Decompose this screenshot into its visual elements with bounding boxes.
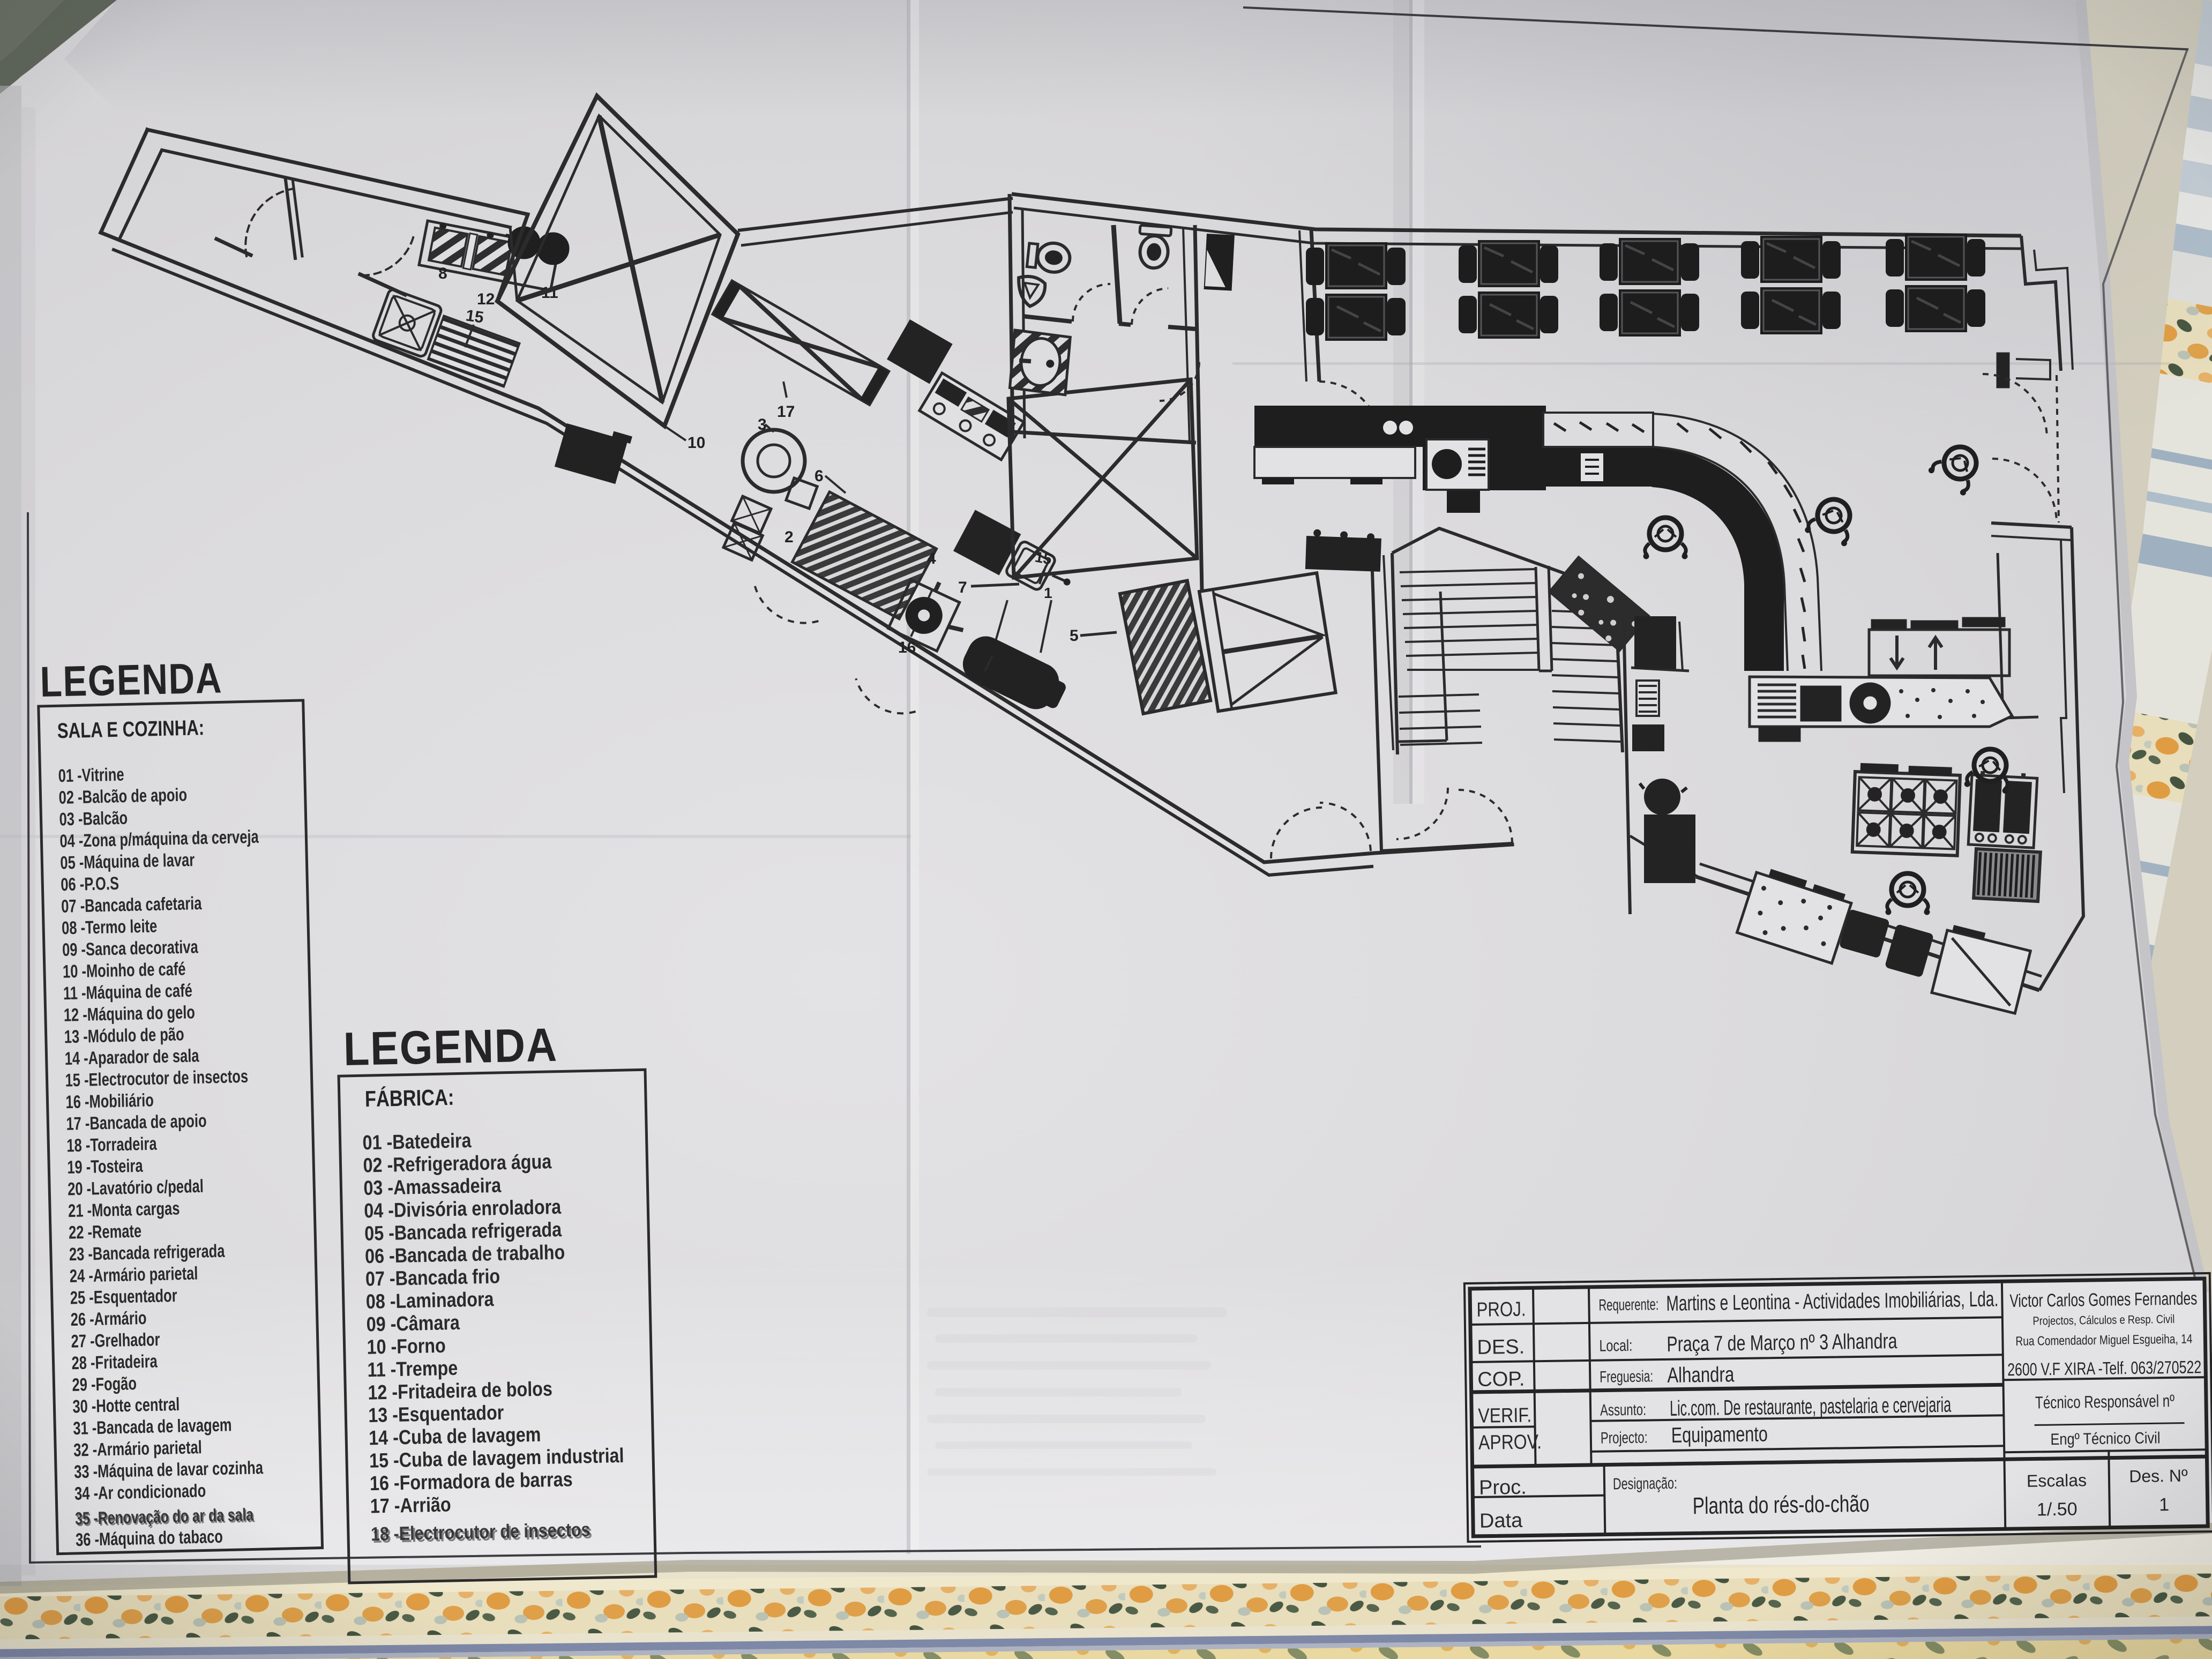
svg-text:LEGENDA: LEGENDA (343, 1018, 558, 1075)
svg-text:Lic.com. De restaurante, paste: Lic.com. De restaurante, pastelaria e ce… (1670, 1393, 1952, 1421)
svg-text:Planta do rés-do-chão: Planta do rés-do-chão (1692, 1491, 1870, 1520)
svg-text:Equipamento: Equipamento (1671, 1422, 1768, 1447)
svg-text:LEGENDA: LEGENDA (40, 654, 223, 706)
svg-text:VERIF.: VERIF. (1478, 1404, 1532, 1427)
svg-text:3: 3 (758, 416, 767, 434)
svg-text:Freguesia:: Freguesia: (1600, 1367, 1653, 1386)
svg-text:Proc.: Proc. (1479, 1476, 1527, 1499)
svg-text:Requerente:: Requerente: (1598, 1296, 1658, 1314)
svg-text:1: 1 (980, 672, 989, 690)
svg-text:Martins e Leontina - Actividad: Martins e Leontina - Actividades Imobili… (1666, 1287, 1999, 1316)
svg-text:Des. Nº: Des. Nº (2129, 1466, 2188, 1486)
svg-text:COP.: COP. (1477, 1368, 1525, 1391)
svg-text:Engº Técnico Civil: Engº Técnico Civil (2050, 1429, 2160, 1448)
svg-text:FÁBRICA:: FÁBRICA: (364, 1084, 454, 1112)
svg-text:Escalas: Escalas (2027, 1470, 2087, 1491)
svg-text:35 -Renovação do ar da sala: 35 -Renovação do ar da sala (76, 1507, 255, 1530)
svg-text:17: 17 (777, 403, 795, 421)
svg-text:1/.50: 1/.50 (2037, 1499, 2078, 1520)
svg-text:Data: Data (1479, 1509, 1523, 1533)
svg-text:Victor Carlos Gomes Fernandes: Victor Carlos Gomes Fernandes (2009, 1288, 2197, 1311)
svg-text:2600 V.F XIRA -Telf. 063/27052: 2600 V.F XIRA -Telf. 063/270522 (2007, 1357, 2201, 1379)
svg-text:Técnico Responsável nº: Técnico Responsável nº (2035, 1391, 2175, 1413)
svg-text:Local:: Local: (1599, 1337, 1632, 1355)
svg-text:8: 8 (438, 265, 447, 282)
svg-text:DES.: DES. (1477, 1336, 1525, 1359)
svg-text:6: 6 (814, 467, 824, 485)
svg-text:15: 15 (465, 307, 485, 326)
svg-text:APROV.: APROV. (1478, 1431, 1542, 1454)
svg-text:7: 7 (958, 579, 967, 596)
svg-text:5: 5 (1070, 627, 1079, 645)
svg-text:2: 2 (784, 528, 794, 546)
svg-text:PROJ.: PROJ. (1476, 1298, 1526, 1321)
svg-text:10: 10 (687, 434, 705, 452)
svg-text:4: 4 (927, 550, 936, 567)
svg-text:Rua Comendador Miguel Esgueiha: Rua Comendador Miguel Esgueiha, 14 (2015, 1332, 2192, 1349)
svg-text:Designação:: Designação: (1613, 1475, 1677, 1493)
svg-text:Praça 7 de Março nº 3 Alhand: Praça 7 de Março nº 3 Alhandra (1667, 1329, 1897, 1356)
svg-text:1: 1 (2159, 1494, 2169, 1515)
svg-text:SALA E COZINHA:: SALA E COZINHA: (57, 715, 204, 743)
svg-text:36 -Máquina do tabaco: 36 -Máquina do tabaco (76, 1527, 223, 1550)
svg-text:1: 1 (1044, 585, 1052, 601)
svg-text:Assunto:: Assunto: (1600, 1401, 1646, 1419)
svg-text:12: 12 (477, 290, 495, 308)
svg-text:Projectos, Cálculos e Resp. Ci: Projectos, Cálculos e Resp. Civil (2032, 1312, 2174, 1328)
svg-text:Projecto:: Projecto: (1601, 1429, 1648, 1447)
svg-text:Alhandra: Alhandra (1667, 1363, 1735, 1387)
